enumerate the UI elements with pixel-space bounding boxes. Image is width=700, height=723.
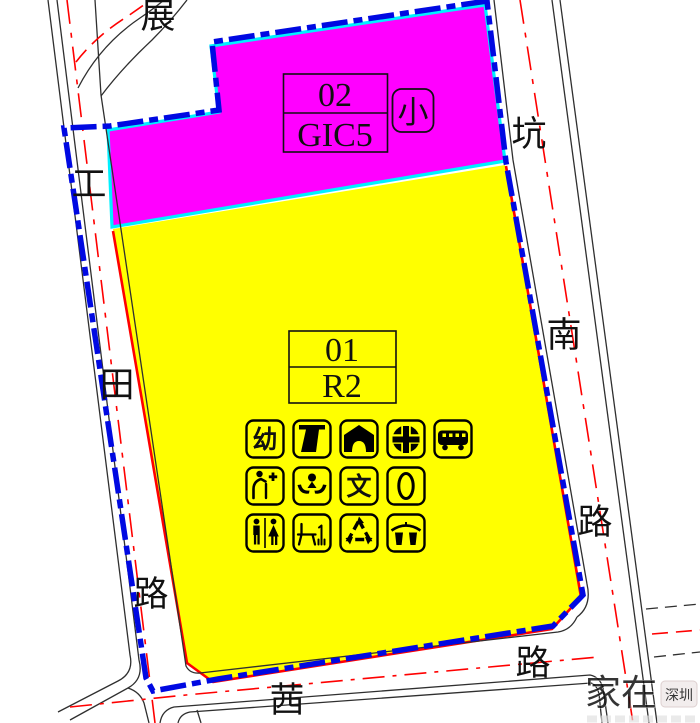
map-canvas: 02 GIC5 小 01 R2 幼 xyxy=(0,0,700,723)
culture-char: 文 xyxy=(346,472,372,501)
school-tag-box: 小 xyxy=(393,89,434,132)
gic5-parcel-code: 02 xyxy=(318,77,352,114)
r2-use-code: R2 xyxy=(322,368,362,405)
r2-parcel-code: 01 xyxy=(325,332,359,369)
school-tag-char: 小 xyxy=(398,95,429,130)
road-label-tian: 田 xyxy=(99,366,134,405)
gic5-use-code: GIC5 xyxy=(297,117,373,154)
watermark-brand-text: 家在 xyxy=(585,673,657,713)
road-label-gong: 工 xyxy=(71,165,106,204)
parcel-r2-area xyxy=(113,165,581,681)
road-label-keng: 坑 xyxy=(511,115,546,154)
kindergarten-char: 幼 xyxy=(252,426,277,454)
watermark-badge-text: 深圳 xyxy=(665,688,693,704)
road-label-lu-bottom: 路 xyxy=(515,644,550,683)
road-label-nan: 南 xyxy=(546,316,581,355)
road-label-lu-left: 路 xyxy=(133,575,168,614)
road-label-qian: 茜 xyxy=(269,681,304,720)
road-label-lu-right: 路 xyxy=(577,503,612,542)
planning-map: 02 GIC5 小 01 R2 幼 xyxy=(0,0,700,723)
road-label-zhan: 展 xyxy=(140,0,175,36)
